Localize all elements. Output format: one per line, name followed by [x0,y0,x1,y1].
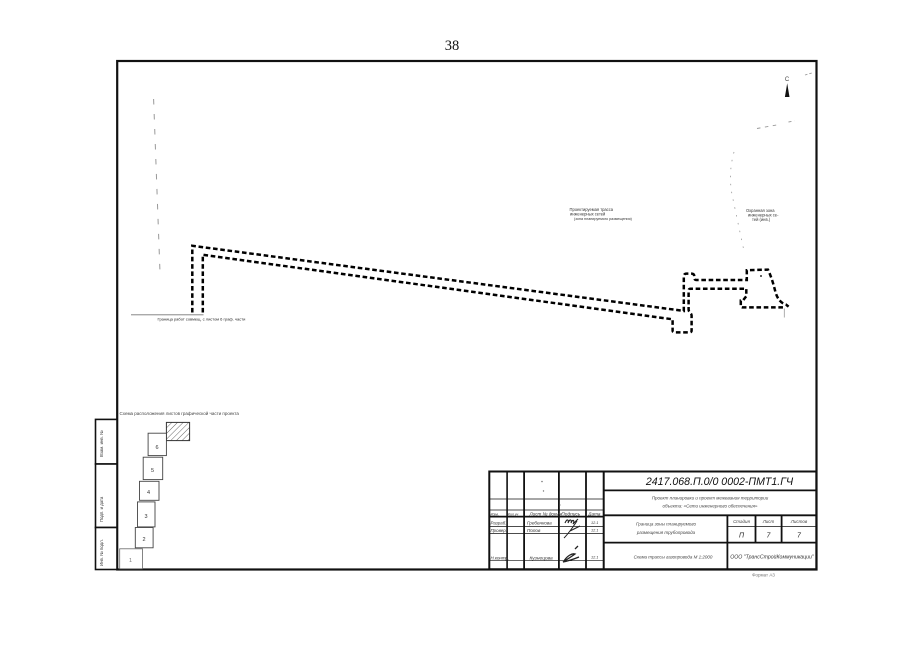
svg-text:7: 7 [797,533,802,540]
svg-text:Подпись: Подпись [561,512,581,518]
svg-text:Гребенкова: Гребенкова [527,521,552,526]
svg-text:12.1: 12.1 [591,529,598,533]
svg-text:Граница работ совмещ. с листом: Граница работ совмещ. с листом 6 граф. ч… [158,317,246,322]
svg-text:38: 38 [445,38,460,54]
svg-text:С: С [785,77,790,83]
svg-text:12.1: 12.1 [591,556,598,560]
svg-text:ООО "ТрансСтройКоммуникации": ООО "ТрансСтройКоммуникации" [730,554,815,561]
svg-text:инженерных сетей: инженерных сетей [570,211,605,216]
svg-text:5: 5 [151,468,154,474]
svg-text:(зона планируемого размещения): (зона планируемого размещения) [574,217,632,221]
svg-text:6: 6 [155,445,158,451]
svg-text:7: 7 [767,533,772,540]
svg-text:Попов: Попов [527,528,541,533]
svg-text:Граница зоны планируемого: Граница зоны планируемого [636,522,697,527]
svg-text:Провер.: Провер. [491,528,507,533]
svg-text:Кол.уч: Кол.уч [508,512,519,516]
svg-text:Изм.: Изм. [491,511,500,516]
svg-text:Н.контр.: Н.контр. [491,556,510,561]
svg-text:Схема трассы газопровода М 1:2: Схема трассы газопровода М 1:2000 [634,555,713,560]
svg-text:12.1: 12.1 [591,521,598,525]
svg-text:размещения трубопровода: размещения трубопровода [636,530,696,535]
svg-text:2417.068.П.0/0 0002-ПМТ1.ГЧ: 2417.068.П.0/0 0002-ПМТ1.ГЧ [645,476,794,488]
svg-text:1: 1 [129,558,132,564]
svg-text:Дата: Дата [587,512,601,517]
svg-text:Разраб.: Разраб. [491,521,507,526]
svg-text:Лист: Лист [762,519,775,524]
svg-text:Проект планировки и проект меж: Проект планировки и проект межевания тер… [652,496,769,501]
svg-text:объекта: «Сети инженерного обе: объекта: «Сети инженерного обеспечения» [663,504,758,509]
svg-text:4: 4 [147,490,150,496]
svg-text:П: П [739,533,745,540]
svg-text:3: 3 [144,514,147,520]
svg-text:Взам. инв. №: Взам. инв. № [99,430,104,457]
svg-text:2: 2 [142,537,145,543]
svg-text:Инв. № подл.: Инв. № подл. [99,539,104,566]
svg-text:Формат А3: Формат А3 [752,573,775,578]
svg-text:Стадия: Стадия [733,519,750,524]
svg-text:тей (инв.): тей (инв.) [752,217,771,222]
svg-text:Лист № докум.: Лист № докум. [529,512,563,517]
svg-text:Листов: Листов [790,519,808,524]
svg-text:Кузнецова: Кузнецова [530,556,554,562]
svg-text:Подп. и дата: Подп. и дата [99,496,104,522]
svg-text:Схема расположения листов граф: Схема расположения листов графической ча… [120,410,240,416]
